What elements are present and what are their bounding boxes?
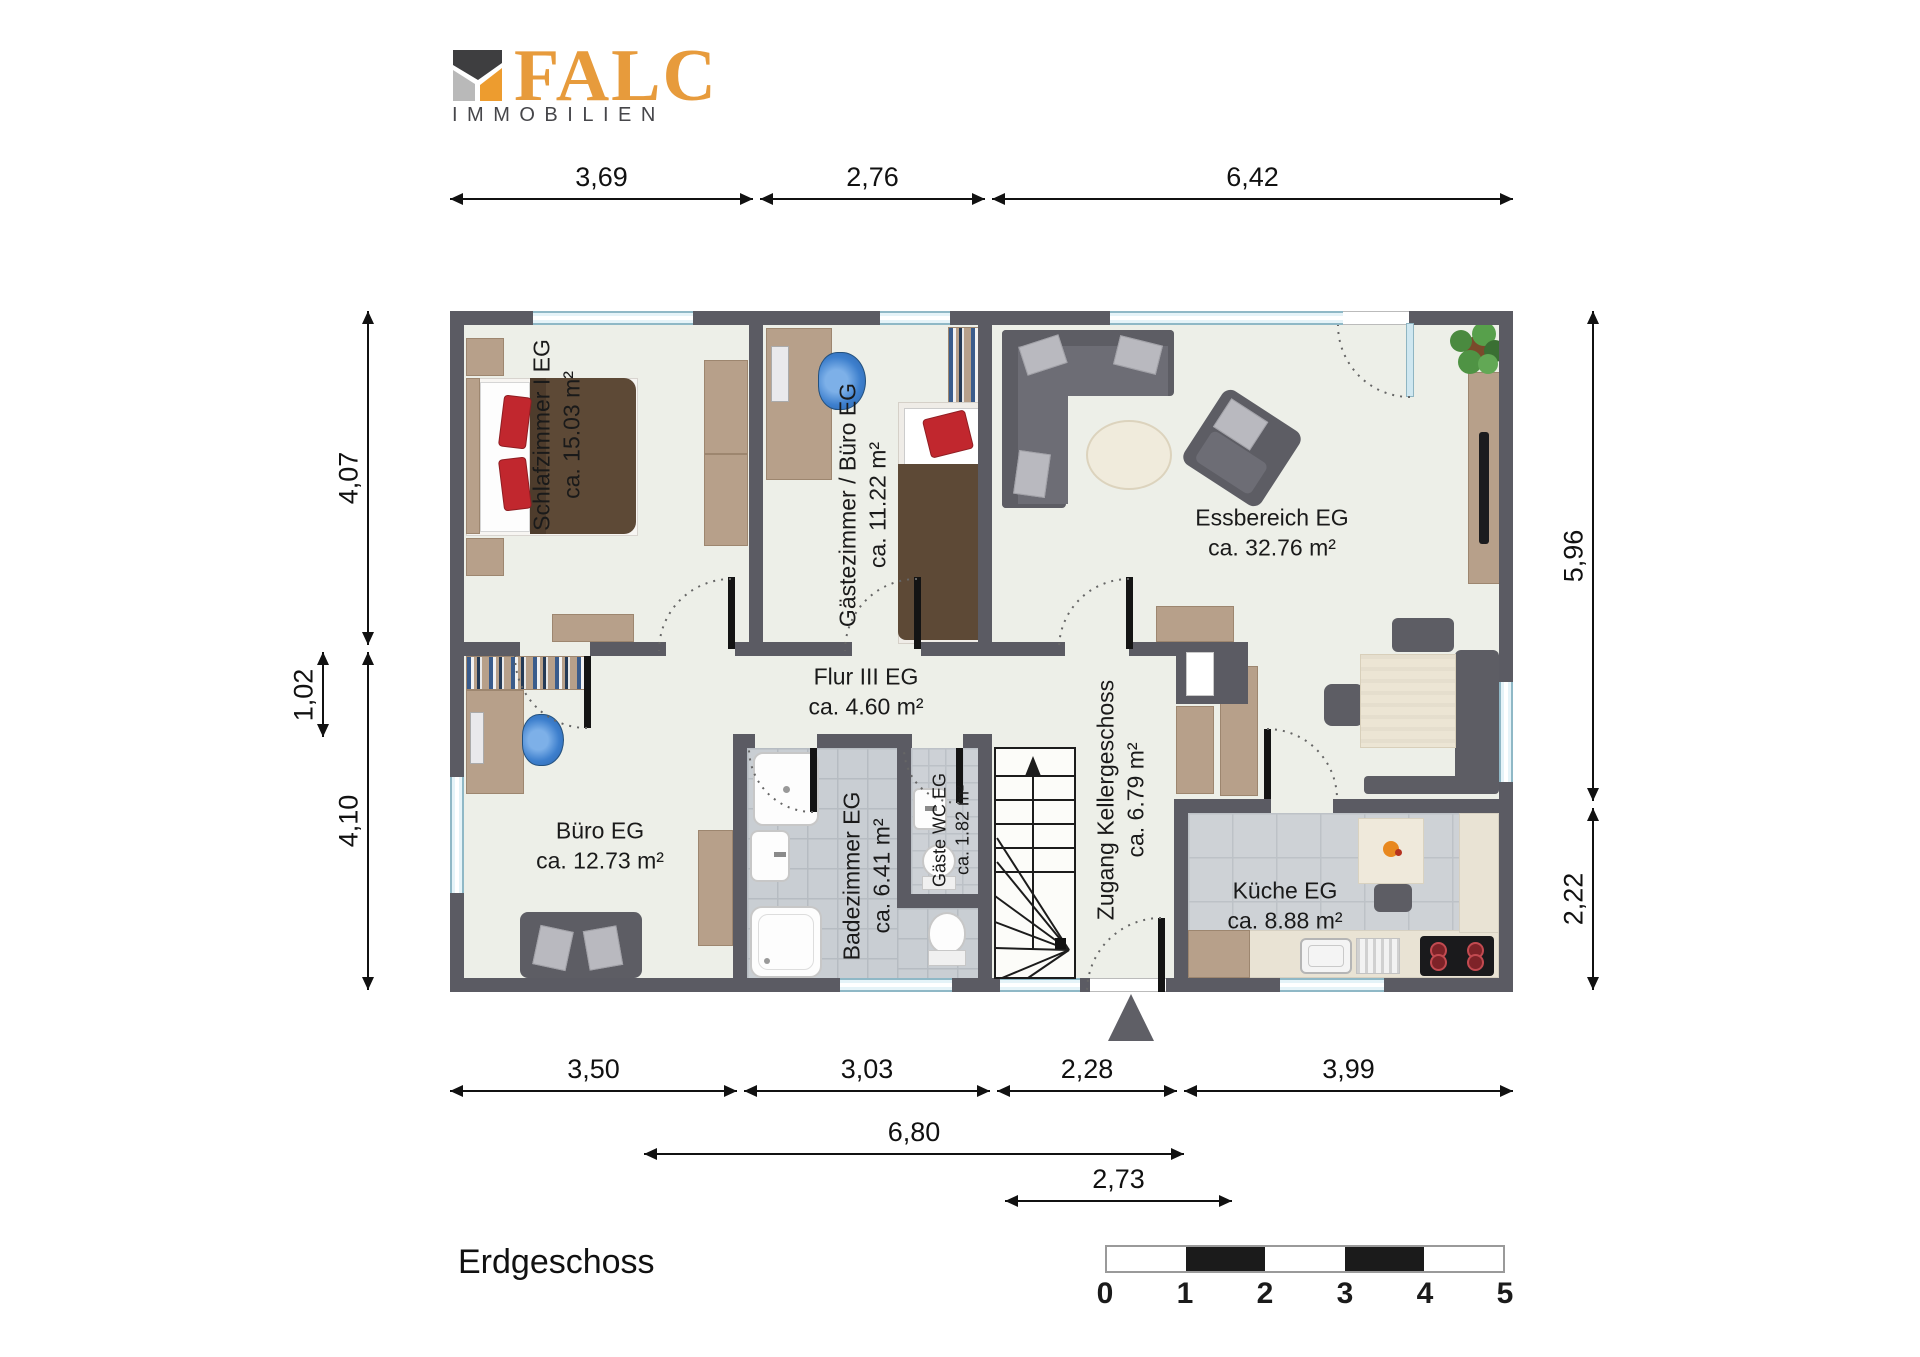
window <box>1000 978 1080 992</box>
wall-interior <box>992 642 1065 656</box>
wall-exterior-right <box>1499 311 1513 992</box>
wall-interior <box>1129 642 1176 656</box>
wardrobe <box>698 830 733 946</box>
bed-blanket <box>898 464 988 640</box>
floor-title: Erdgeschoss <box>458 1243 655 1282</box>
dim-bottom-2: 3,03 <box>744 1090 990 1092</box>
nightstand <box>466 538 504 576</box>
corner-bench <box>1364 776 1499 794</box>
bed-headboard <box>466 378 480 534</box>
wall-interior <box>733 748 747 978</box>
window <box>840 978 952 992</box>
wall-interior <box>749 325 763 656</box>
monitor <box>771 346 789 402</box>
kitchen-table <box>1358 818 1424 884</box>
window <box>1499 682 1513 782</box>
dresser <box>552 614 634 642</box>
falc-logo: FALC IMMOBILIEN <box>452 48 504 107</box>
room-label-kueche: Küche EGca. 8.88 m² <box>1227 876 1342 937</box>
window <box>1280 978 1384 992</box>
door-leaf-bedroom <box>728 577 735 649</box>
wall-interior <box>733 734 755 748</box>
kitchen-sink <box>1300 938 1352 974</box>
entrance-door-opening <box>1090 978 1166 992</box>
room-label-gaestezimmer: Gästezimmer / Büro EGca. 11.22 m² <box>833 383 894 627</box>
wall-interior <box>464 642 520 656</box>
dining-table <box>1360 654 1456 748</box>
door-leaf-guestroom <box>914 577 921 649</box>
entrance-arrow-marker <box>1108 994 1154 1041</box>
window <box>533 311 693 325</box>
wall-interior <box>1174 799 1188 992</box>
monitor <box>470 712 484 764</box>
sofa-pillow <box>1013 450 1051 498</box>
wall-interior <box>735 642 763 656</box>
bathroom-sink <box>750 830 790 882</box>
window <box>880 311 950 325</box>
kitchen-counter-side <box>1459 813 1499 933</box>
door-leaf-office <box>584 656 591 728</box>
door-leaf-kitchen <box>1264 729 1271 799</box>
room-label-buero: Büro EGca. 12.73 m² <box>536 816 664 877</box>
room-label-zugang-keller: Zugang Kellergeschossca. 6.79 m² <box>1091 680 1152 920</box>
dim-top-1: 3,69 <box>450 198 753 200</box>
wall-interior <box>590 642 666 656</box>
room-label-schlafzimmer: Schlafzimmer I EGca. 15.03 m² <box>527 339 588 531</box>
toilet-tank <box>928 950 966 966</box>
wardrobe <box>704 454 748 546</box>
dim-right-2: 2,22 <box>1592 808 1594 990</box>
room-label-badezimmer: Badezimmer EGca. 6.41 m² <box>837 792 898 961</box>
logo-subtitle-text: IMMOBILIEN <box>452 104 665 127</box>
nightstand <box>466 338 504 376</box>
wall-interior <box>763 642 852 656</box>
dim-bottom-4: 3,99 <box>1184 1090 1513 1092</box>
bookshelf <box>466 656 590 690</box>
window <box>1110 311 1343 325</box>
dim-bottom-3: 2,28 <box>997 1090 1177 1092</box>
floorplan-page: FALC IMMOBILIEN <box>0 0 1920 1357</box>
wall-interior <box>978 325 992 656</box>
sink-drainer <box>1356 938 1400 974</box>
door-leaf-bathroom <box>810 748 817 812</box>
bathtub <box>750 906 822 978</box>
room-label-gaeste-wc: Gäste WC EGca. 1.82 m² <box>929 773 974 887</box>
dining-chair <box>1324 684 1364 726</box>
door-leaf-living <box>1126 577 1133 649</box>
coffee-table <box>1086 420 1172 490</box>
scale-number: 0 <box>1097 1277 1114 1311</box>
patio-door-opening <box>1343 311 1409 325</box>
wall-niche <box>1186 652 1214 696</box>
wall-interior <box>978 734 992 992</box>
room-label-flur: Flur III EGca. 4.60 m² <box>808 662 923 723</box>
cabinet <box>1176 706 1214 794</box>
dim-bottom-1: 3,50 <box>450 1090 737 1092</box>
dining-stool <box>1392 618 1454 652</box>
window <box>450 777 464 893</box>
wall-kitchen-top <box>1174 799 1271 813</box>
stove <box>1420 936 1494 976</box>
dim-bottom-overall: 6,80 <box>644 1153 1184 1155</box>
wall-interior <box>817 734 912 748</box>
room-label-essbereich: Essbereich EGca. 32.76 m² <box>1195 503 1348 564</box>
wall-interior <box>897 748 911 894</box>
dim-bottom-entry: 2,73 <box>1005 1200 1232 1202</box>
corner-bench <box>1455 650 1499 786</box>
patio-door-leaf <box>1406 323 1414 397</box>
dim-left-1: 4,07 <box>367 311 369 645</box>
scale-number: 5 <box>1497 1277 1514 1311</box>
sideboard <box>1156 606 1234 642</box>
scale-number: 4 <box>1417 1277 1434 1311</box>
door-leaf-entrance <box>1158 918 1165 992</box>
toilet <box>928 912 966 954</box>
desk-chair <box>522 714 564 766</box>
scale-number: 1 <box>1177 1277 1194 1311</box>
dim-right-1: 5,96 <box>1592 311 1594 801</box>
tv <box>1479 432 1489 544</box>
falc-house-icon <box>452 48 504 102</box>
scale-number: 3 <box>1337 1277 1354 1311</box>
kitchen-cabinet <box>1188 930 1250 978</box>
dim-top-3: 6,42 <box>992 198 1513 200</box>
scale-number: 2 <box>1257 1277 1274 1311</box>
wall-interior <box>921 642 992 656</box>
wall-kitchen-top <box>1333 799 1513 813</box>
dim-top-2: 2,76 <box>760 198 985 200</box>
armchair <box>520 912 642 978</box>
wardrobe <box>704 360 748 454</box>
dim-left-2: 1,02 <box>322 652 324 737</box>
kitchen-chair <box>1374 884 1412 912</box>
dim-left-3: 4,10 <box>367 652 369 990</box>
scale-bar <box>1105 1245 1505 1273</box>
